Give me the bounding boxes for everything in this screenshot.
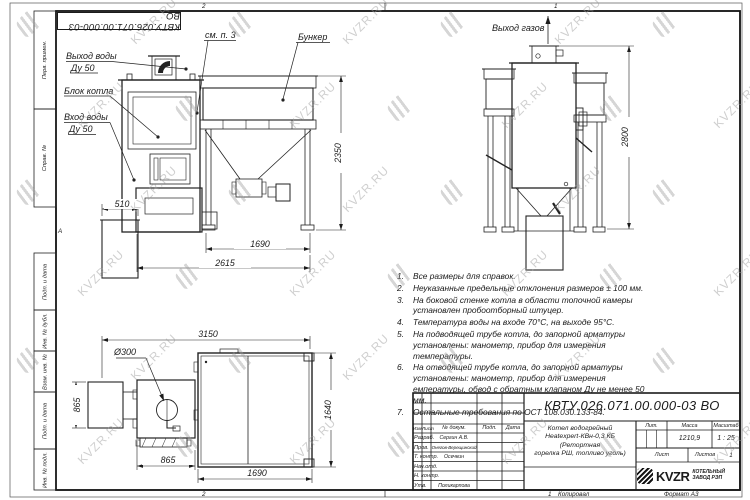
zone-number-bottom-left: 2 [202,491,206,498]
margin-field-sprav-no: Справ. № [39,109,51,207]
note-item: Температура воды на входе 70°С, на выход… [396,317,654,328]
company-logo: KVZR КОТЕЛЬНЫЙ ЗАВОД РЭП [637,463,738,489]
tb-role-prov: Пров. [414,445,429,451]
note-item: На подводящей трубе котла, до запорной а… [396,329,654,361]
tb-name-utv: Поликарпова [431,483,477,489]
zone-number-top-left: 2 [202,3,206,10]
plan-view-dimensions [72,336,336,483]
label-water-outlet: Выход воды [66,51,117,61]
margin-field-vzam-inv: Взам. инв. № [39,351,51,392]
tb-lit-label: Лит. [636,423,667,429]
tb-name-razrab: Сергин А.В. [431,435,477,441]
dim-3150: 3150 [182,329,234,339]
label-water-outlet-dn: Ду 50 [71,63,94,73]
kvzr-logo-icon [637,468,653,484]
dim-2800: 2800 [620,117,630,157]
tb-mass-value: 1210,9 [667,435,712,442]
dim-865-left: 865 [72,385,82,425]
tb-mass-label: Масса [667,423,712,429]
side-view-drawing [482,16,608,270]
label-water-inlet-dn: Ду 50 [69,124,92,134]
copied-label: Копировал [558,491,589,498]
kvzr-logo-text: KVZR [656,469,689,484]
dim-2615: 2615 [199,258,251,268]
dim-510: 510 [104,199,140,209]
plan-view-drawing [88,349,314,467]
kvzr-logo-caption: КОТЕЛЬНЫЙ ЗАВОД РЭП [692,470,725,481]
title-block-doc-number: КВТУ.026.071.00.000-03 ВО [524,398,740,413]
tb-role-utv: Утв. [414,483,427,489]
zone-number-bottom-right: 1 [548,491,552,498]
tb-name-prov: Онегов-Верещинский [430,445,478,450]
tb-col-sign: Подп. [477,425,502,431]
label-bunker: Бункер [298,32,327,42]
label-see-note-3: см. п. 3 [205,30,236,40]
top-stamp: КВТУ.026.071.00.000-03 ВО [57,12,181,30]
tb-col-doc: № докум. [431,425,477,431]
margin-field-podp-data-2: Подп. и дата [39,392,51,449]
technical-notes: Все размеры для справок. Неуказанные пре… [396,271,654,418]
sheet-frame [10,3,742,497]
margin-field-podp-data-1: Подп. и дата [39,253,51,310]
dim-1690-plan: 1690 [231,468,283,478]
dim-1640: 1640 [323,390,333,430]
dim-diameter-300: Ø300 [114,347,136,357]
dim-2350: 2350 [333,133,343,173]
zone-marker-a: А [58,228,62,235]
dim-1690-front: 1690 [234,239,286,249]
title-block-product-name: Котел водогрейный Heatexpert-КВн-0,3 КБ … [524,425,636,459]
label-gas-outlet: Выход газов [492,23,544,33]
zone-number-top-right: 1 [554,3,558,10]
drawing-sheet: КВТУ.026.071.00.000-03 ВО 2 1 2 1 А Перв… [0,0,750,500]
label-water-inlet: Вход воды [64,112,108,122]
label-boiler-block: Блок котла [64,86,113,96]
margin-field-perv-primen: Перв. примен. [39,11,51,109]
tb-role-nachotd: Нач.отд. [414,464,438,470]
front-view-dimensions [102,76,346,272]
tb-role-nkontr: Н. контр. [414,473,439,479]
format-label: Формат А3 [664,491,698,498]
margin-field-inv-podl: Инв. № подл. [39,449,51,490]
tb-sheets-value: 1 [724,452,738,459]
tb-scale-value: 1 : 25 [712,435,740,442]
tb-col-date: Дата [502,425,524,431]
margin-field-inv-dubl: Инв. № дубл. [39,310,51,351]
tb-sheets-label: Листов [690,452,720,458]
tb-sheet-label: Лист [636,452,688,458]
tb-scale-label: Масштаб [712,423,740,429]
note-item: Неуказанные предельные отклонения размер… [396,283,654,294]
top-stamp-number: КВТУ.026.071.00.000-03 ВО [58,10,180,32]
tb-col-izm: Изм. [413,426,422,431]
tb-name-tkontr: Осечкин [431,454,477,460]
tb-col-list: Лист [422,426,431,431]
note-item: На боковой стенке котла в области топочн… [396,295,654,317]
notes-list: Все размеры для справок. Неуказанные пре… [396,271,654,417]
note-item: Все размеры для справок. [396,271,654,282]
dim-865-bottom: 865 [142,455,194,465]
